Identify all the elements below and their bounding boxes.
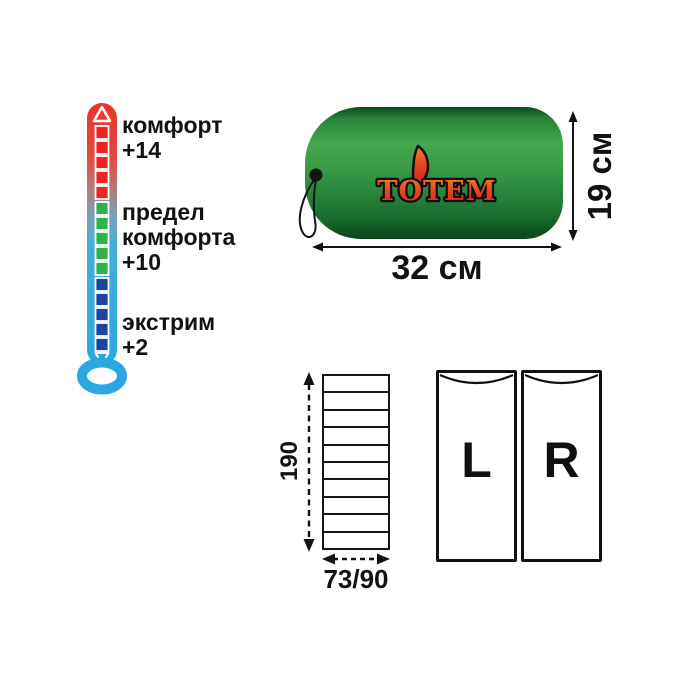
thermometer-mild-segments — [96, 202, 109, 275]
height-dimension-label: 19 см — [581, 132, 619, 221]
comfort-limit-title-line1: предел — [122, 200, 235, 225]
length-dimension-label: 190 — [276, 441, 304, 481]
quilt-row — [324, 411, 388, 428]
left-panel-collar-curve — [439, 373, 514, 393]
left-zip-letter: L — [439, 431, 514, 489]
extreme-title: экстрим — [122, 310, 215, 335]
comfort-limit-title-line2: комфорта — [122, 225, 235, 250]
quilt-row — [324, 463, 388, 480]
quilt-row — [324, 446, 388, 463]
extreme-rating-label: экстрим +2 — [122, 310, 215, 360]
quilt-row — [324, 533, 388, 548]
right-panel-collar-curve — [524, 373, 599, 393]
totem-logo: ТОТЕМ — [372, 144, 502, 208]
right-zip-variant-panel: R — [521, 370, 602, 562]
quilt-row — [324, 515, 388, 532]
right-zip-letter: R — [524, 431, 599, 489]
comfort-title: комфорт — [122, 113, 223, 138]
unfolded-bag-diagram — [322, 374, 390, 550]
quilt-row — [324, 393, 388, 410]
quilt-row — [324, 498, 388, 515]
logo-text: ТОТЕМ — [377, 176, 496, 207]
comfort-value: +14 — [122, 138, 223, 163]
height-dimension-arrow — [565, 110, 581, 242]
quilt-row — [324, 428, 388, 445]
thermometer-cold-segments — [96, 278, 109, 351]
left-zip-variant-panel: L — [436, 370, 517, 562]
comfort-rating-label: комфорт +14 — [122, 113, 223, 163]
quilt-row — [324, 376, 388, 393]
thermometer-warm-segments — [96, 126, 109, 199]
unfolded-width-dimension-label: 73/90 — [306, 564, 406, 595]
drawcord-icon — [287, 163, 335, 247]
comfort-limit-value: +10 — [122, 250, 235, 275]
quilt-row — [324, 480, 388, 497]
extreme-value: +2 — [122, 335, 215, 360]
comfort-limit-rating-label: предел комфорта +10 — [122, 200, 235, 275]
width-dimension-label: 32 см — [311, 249, 563, 288]
thermometer-bulb — [82, 363, 122, 390]
infographic-canvas: комфорт +14 предел комфорта +10 экстрим … — [0, 0, 700, 700]
